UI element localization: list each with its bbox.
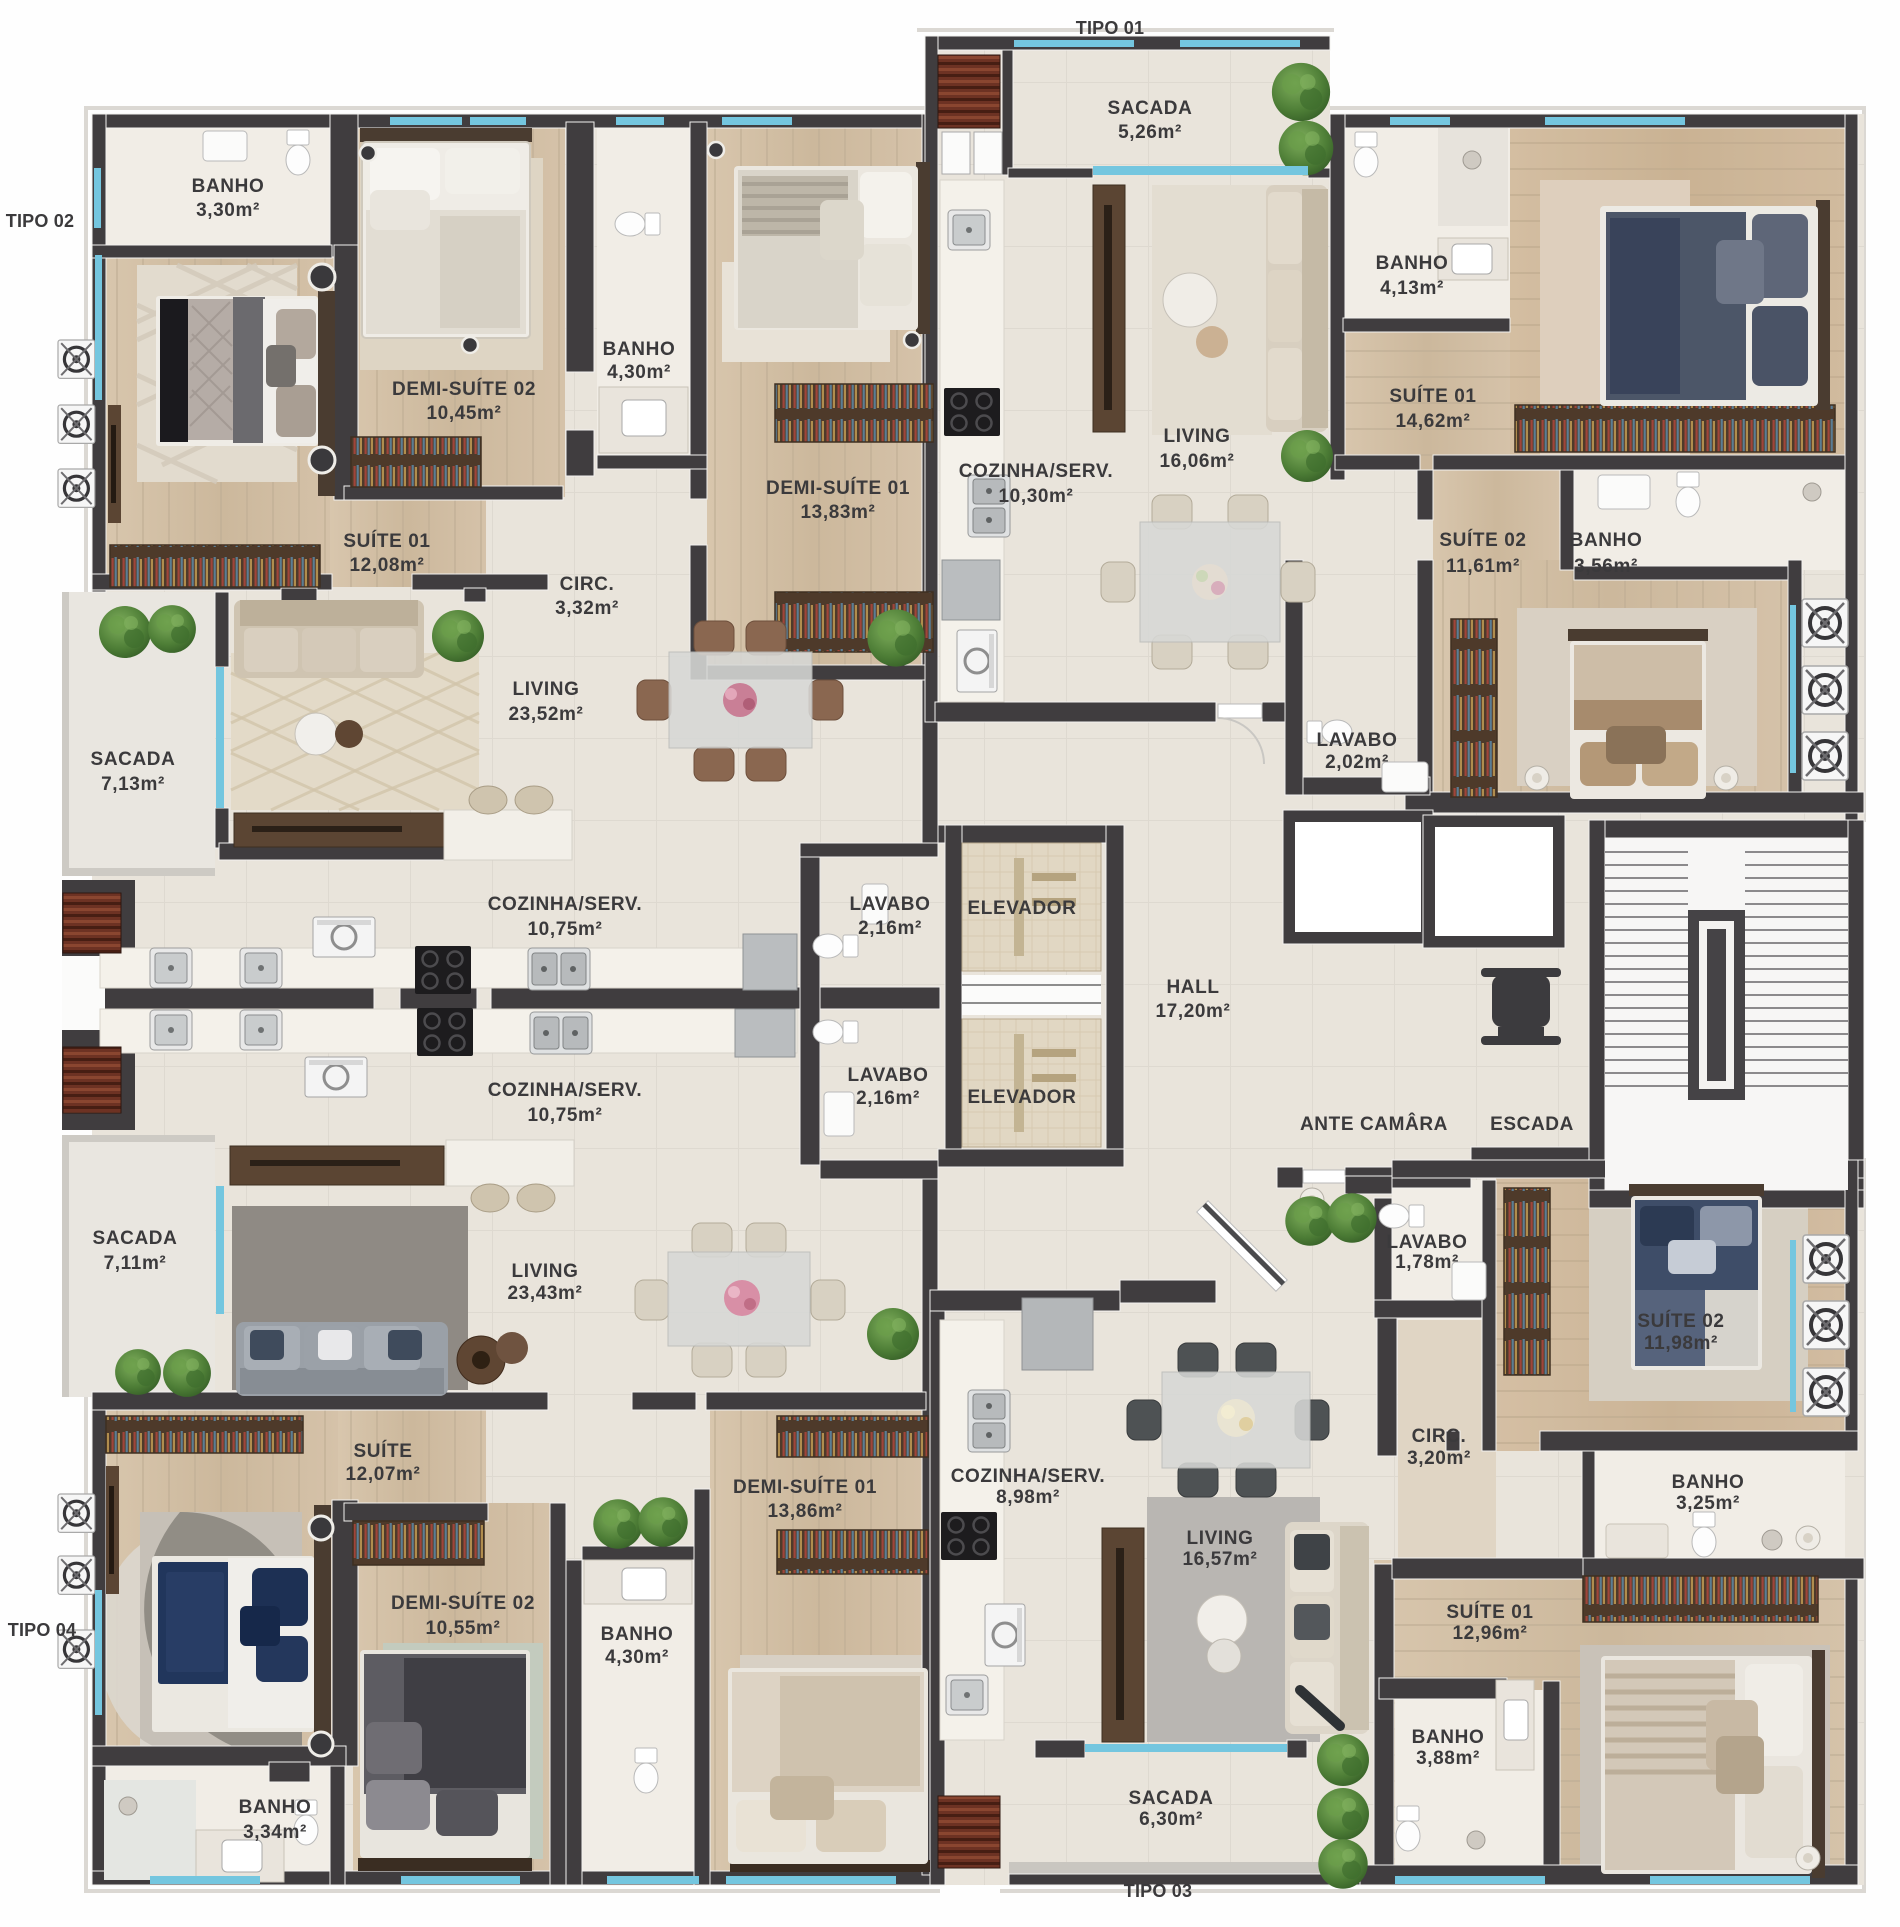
svg-text:7,11m²: 7,11m² bbox=[104, 1253, 167, 1274]
svg-text:11,98m²: 11,98m² bbox=[1644, 1333, 1718, 1354]
svg-text:TIPO 02: TIPO 02 bbox=[6, 211, 74, 231]
svg-text:23,43m²: 23,43m² bbox=[508, 1283, 583, 1304]
svg-text:14,62m²: 14,62m² bbox=[1396, 411, 1471, 432]
svg-text:2,16m²: 2,16m² bbox=[858, 918, 922, 939]
svg-text:ELEVADOR: ELEVADOR bbox=[968, 1087, 1077, 1108]
svg-text:10,75m²: 10,75m² bbox=[528, 1105, 603, 1126]
svg-text:BANHO: BANHO bbox=[1570, 530, 1643, 551]
svg-text:SACADA: SACADA bbox=[1108, 98, 1193, 119]
svg-text:BANHO: BANHO bbox=[192, 176, 265, 197]
svg-text:TIPO 01: TIPO 01 bbox=[1076, 18, 1144, 38]
svg-text:3,88m²: 3,88m² bbox=[1416, 1748, 1480, 1769]
svg-text:SUÍTE 01: SUÍTE 01 bbox=[343, 530, 430, 552]
svg-text:BANHO: BANHO bbox=[1412, 1727, 1485, 1748]
svg-text:11,61m²: 11,61m² bbox=[1446, 556, 1520, 577]
svg-text:COZINHA/SERV.: COZINHA/SERV. bbox=[488, 894, 643, 915]
svg-text:CIRC.: CIRC. bbox=[560, 574, 615, 595]
svg-text:3,56m²: 3,56m² bbox=[1574, 556, 1638, 577]
svg-text:3,20m²: 3,20m² bbox=[1407, 1448, 1471, 1469]
svg-text:LIVING: LIVING bbox=[513, 679, 580, 700]
svg-text:3,30m²: 3,30m² bbox=[196, 200, 260, 221]
svg-text:BANHO: BANHO bbox=[1672, 1472, 1745, 1493]
svg-text:5,26m²: 5,26m² bbox=[1118, 122, 1182, 143]
svg-text:2,02m²: 2,02m² bbox=[1325, 752, 1389, 773]
svg-text:3,34m²: 3,34m² bbox=[243, 1822, 307, 1843]
svg-text:SACADA: SACADA bbox=[1129, 1788, 1214, 1809]
svg-text:SUÍTE: SUÍTE bbox=[354, 1440, 413, 1462]
svg-text:4,30m²: 4,30m² bbox=[605, 1647, 669, 1668]
svg-text:COZINHA/SERV.: COZINHA/SERV. bbox=[951, 1466, 1106, 1487]
svg-text:3,25m²: 3,25m² bbox=[1676, 1493, 1740, 1514]
svg-text:4,13m²: 4,13m² bbox=[1380, 278, 1444, 299]
svg-text:BANHO: BANHO bbox=[603, 339, 676, 360]
svg-text:TIPO 04: TIPO 04 bbox=[8, 1620, 76, 1640]
svg-text:6,30m²: 6,30m² bbox=[1139, 1809, 1203, 1830]
svg-text:BANHO: BANHO bbox=[239, 1797, 312, 1818]
svg-text:SACADA: SACADA bbox=[93, 1228, 178, 1249]
svg-text:8,98m²: 8,98m² bbox=[996, 1487, 1060, 1508]
svg-text:COZINHA/SERV.: COZINHA/SERV. bbox=[488, 1080, 643, 1101]
svg-text:DEMI-SUÍTE 02: DEMI-SUÍTE 02 bbox=[391, 1592, 535, 1614]
svg-text:4,30m²: 4,30m² bbox=[607, 362, 671, 383]
svg-text:16,57m²: 16,57m² bbox=[1183, 1549, 1258, 1570]
svg-text:7,13m²: 7,13m² bbox=[101, 774, 165, 795]
svg-text:BANHO: BANHO bbox=[1376, 253, 1449, 274]
svg-text:COZINHA/SERV.: COZINHA/SERV. bbox=[959, 461, 1114, 482]
svg-text:CIRC.: CIRC. bbox=[1412, 1426, 1467, 1447]
svg-text:BANHO: BANHO bbox=[601, 1624, 674, 1645]
svg-text:HALL: HALL bbox=[1166, 977, 1219, 998]
svg-text:23,52m²: 23,52m² bbox=[509, 704, 584, 725]
svg-text:LAVABO: LAVABO bbox=[849, 894, 930, 915]
svg-text:SUÍTE 02: SUÍTE 02 bbox=[1637, 1310, 1724, 1332]
svg-text:LAVABO: LAVABO bbox=[847, 1065, 928, 1086]
svg-text:10,30m²: 10,30m² bbox=[999, 486, 1074, 507]
svg-text:ANTE CAMÂRA: ANTE CAMÂRA bbox=[1300, 1113, 1448, 1135]
svg-text:ELEVADOR: ELEVADOR bbox=[968, 898, 1077, 919]
svg-text:12,07m²: 12,07m² bbox=[346, 1464, 421, 1485]
svg-text:DEMI-SUÍTE 01: DEMI-SUÍTE 01 bbox=[766, 477, 910, 499]
svg-text:16,06m²: 16,06m² bbox=[1160, 451, 1235, 472]
svg-text:10,75m²: 10,75m² bbox=[528, 919, 603, 940]
svg-text:SUÍTE 01: SUÍTE 01 bbox=[1389, 385, 1476, 407]
svg-text:LAVABO: LAVABO bbox=[1386, 1232, 1467, 1253]
svg-text:1,78m²: 1,78m² bbox=[1395, 1252, 1459, 1273]
svg-text:13,83m²: 13,83m² bbox=[801, 502, 876, 523]
svg-text:DEMI-SUÍTE 01: DEMI-SUÍTE 01 bbox=[733, 1476, 877, 1498]
svg-text:SUÍTE 01: SUÍTE 01 bbox=[1446, 1601, 1533, 1623]
svg-text:13,86m²: 13,86m² bbox=[768, 1501, 843, 1522]
svg-text:LIVING: LIVING bbox=[512, 1261, 579, 1282]
svg-text:TIPO 03: TIPO 03 bbox=[1124, 1881, 1192, 1901]
svg-text:10,55m²: 10,55m² bbox=[426, 1618, 501, 1639]
svg-text:SACADA: SACADA bbox=[91, 749, 176, 770]
svg-text:LIVING: LIVING bbox=[1164, 426, 1231, 447]
svg-text:2,16m²: 2,16m² bbox=[856, 1088, 920, 1109]
svg-text:SUÍTE 02: SUÍTE 02 bbox=[1439, 529, 1526, 551]
svg-text:LIVING: LIVING bbox=[1187, 1528, 1254, 1549]
svg-text:LAVABO: LAVABO bbox=[1316, 730, 1397, 751]
svg-text:12,96m²: 12,96m² bbox=[1453, 1623, 1528, 1644]
svg-text:3,32m²: 3,32m² bbox=[555, 598, 619, 619]
svg-text:17,20m²: 17,20m² bbox=[1156, 1001, 1231, 1022]
svg-text:ESCADA: ESCADA bbox=[1490, 1114, 1574, 1135]
svg-text:10,45m²: 10,45m² bbox=[427, 403, 502, 424]
svg-text:DEMI-SUÍTE 02: DEMI-SUÍTE 02 bbox=[392, 378, 536, 400]
svg-text:12,08m²: 12,08m² bbox=[350, 555, 425, 576]
